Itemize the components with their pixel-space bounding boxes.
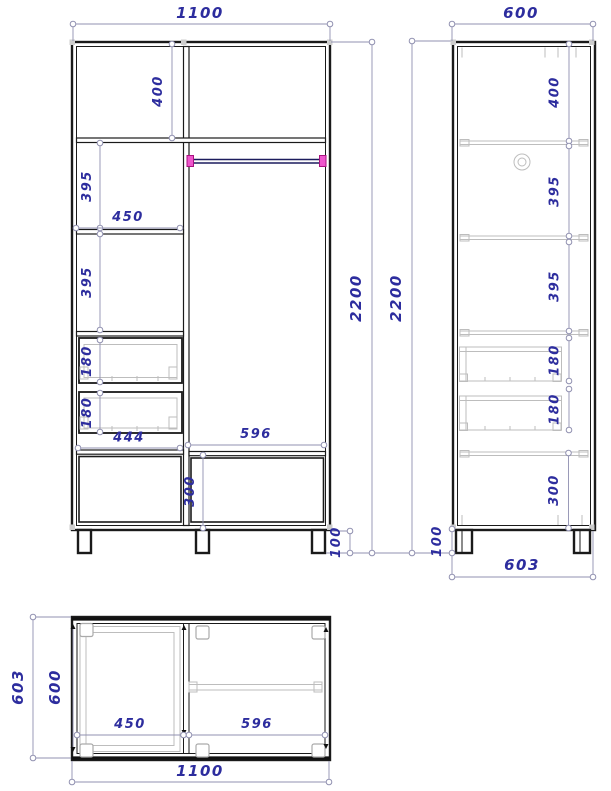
dim-front-top-section: 400 — [151, 75, 166, 108]
dim-endpoint — [449, 21, 455, 27]
dim-plan-right-width: 596 — [241, 717, 273, 732]
dim-endpoint — [200, 525, 206, 531]
dim-endpoint — [566, 335, 572, 341]
dim-endpoint — [449, 550, 455, 556]
dim-endpoint — [449, 574, 455, 580]
dim-endpoint — [566, 143, 572, 149]
front-legs — [78, 530, 325, 553]
dim-endpoint — [566, 328, 572, 334]
dim-front-drawer-width: 444 — [112, 431, 145, 446]
dim-endpoint — [97, 390, 103, 396]
plan-leg — [80, 744, 93, 757]
front-view: 1100 400 395 450 395 180 180 — [70, 4, 453, 558]
dim-side-shelf-a: 395 — [548, 175, 563, 207]
front-right-divider — [189, 452, 326, 456]
wardrobe-drawing: 1100 400 395 450 395 180 180 — [0, 0, 611, 791]
plan-leg — [312, 744, 325, 757]
front-leg-right — [312, 530, 325, 553]
dim-endpoint — [177, 445, 183, 451]
dim-endpoint — [449, 526, 455, 532]
dim-endpoint — [185, 442, 191, 448]
plan-leg — [80, 624, 93, 637]
dim-endpoint — [590, 21, 596, 27]
vertex-marker — [451, 40, 457, 46]
vertex-marker — [70, 40, 76, 46]
dim-front-total-height: 2200 — [347, 274, 365, 322]
dim-endpoint — [321, 442, 327, 448]
dim-endpoint — [74, 732, 80, 738]
dim-plan-depth-outer: 603 — [9, 669, 27, 705]
front-leg-left — [78, 530, 91, 553]
dim-endpoint — [590, 574, 596, 580]
dim-endpoint — [30, 614, 36, 620]
dim-endpoint — [70, 21, 76, 27]
side-leg-back — [574, 530, 590, 553]
technical-drawing-canvas: 1100 400 395 450 395 180 180 — [0, 0, 611, 791]
dim-side-drawer-b: 180 — [548, 393, 563, 425]
dim-side-leg-height: 100 — [430, 525, 445, 557]
side-view: 600 400 395 395 180 180 300 — [430, 4, 596, 580]
dim-endpoint — [322, 732, 328, 738]
plan-leg — [196, 626, 209, 639]
front-shelf-3 — [77, 450, 184, 454]
dim-endpoint — [566, 427, 572, 433]
dim-endpoint — [177, 225, 183, 231]
dim-front-leg-height: 100 — [329, 526, 344, 558]
dim-endpoint — [97, 429, 103, 435]
dim-endpoint — [97, 337, 103, 343]
side-carcass — [453, 42, 595, 530]
dim-side-total-height: 2200 — [387, 274, 405, 322]
dim-plan-left-width: 450 — [113, 717, 146, 732]
dim-endpoint — [69, 779, 75, 785]
side-leg-front — [456, 530, 472, 553]
dim-endpoint — [566, 525, 572, 531]
dim-endpoint — [409, 550, 415, 556]
dim-side-shelf-b: 395 — [548, 270, 563, 302]
side-legs — [456, 530, 590, 553]
dim-front-total-width: 1100 — [176, 4, 224, 22]
dim-plan-depth-inner: 600 — [46, 669, 64, 705]
dim-endpoint — [347, 528, 353, 534]
front-left-door — [79, 457, 181, 523]
dim-front-bottom-section: 300 — [183, 475, 198, 507]
dim-endpoint — [30, 755, 36, 761]
dim-endpoint — [97, 379, 103, 385]
dim-endpoint — [409, 38, 415, 44]
dim-endpoint — [169, 135, 175, 141]
dim-front-shelf-a: 395 — [80, 170, 95, 202]
vertex-marker — [589, 40, 595, 46]
dim-front-left-width: 450 — [111, 210, 144, 225]
dim-endpoint — [97, 140, 103, 146]
rod-cap-left — [187, 156, 194, 167]
front-middle-divider — [184, 47, 190, 526]
dim-endpoint — [369, 39, 375, 45]
dim-endpoint — [326, 779, 332, 785]
dim-endpoint — [75, 445, 81, 451]
rod-cap-right — [320, 156, 327, 167]
dim-side-top-section: 400 — [548, 76, 563, 109]
dim-endpoint — [97, 231, 103, 237]
dim-endpoint — [566, 41, 572, 47]
dim-side-drawer-a: 180 — [548, 344, 563, 376]
front-right-panel — [191, 458, 324, 522]
dim-endpoint — [347, 550, 353, 556]
dim-endpoint — [566, 386, 572, 392]
dim-endpoint — [97, 327, 103, 333]
dim-endpoint — [186, 732, 192, 738]
dim-endpoint — [200, 452, 206, 458]
dim-endpoint — [369, 550, 375, 556]
dim-endpoint — [181, 732, 187, 738]
vertex-marker — [181, 40, 187, 46]
dim-side-bottom-section: 300 — [547, 474, 562, 506]
dim-endpoint — [566, 450, 572, 456]
dim-side-depth-bottom: 603 — [504, 556, 540, 574]
front-shelf-2 — [77, 332, 184, 337]
dim-front-drawer-a: 180 — [80, 345, 95, 377]
plan-leg — [312, 626, 325, 639]
dim-endpoint — [566, 233, 572, 239]
front-top-shelf — [77, 138, 326, 143]
dim-front-shelf-b: 395 — [80, 266, 95, 298]
dim-endpoint — [73, 225, 79, 231]
side-cabinet-outline — [451, 40, 596, 531]
dim-endpoint — [566, 378, 572, 384]
front-shelf-1 — [77, 230, 184, 235]
dim-endpoint — [169, 41, 175, 47]
plan-view: 603 600 450 596 1100 — [9, 614, 332, 785]
dim-plan-total-width: 1100 — [176, 762, 224, 780]
dim-side-depth-top: 600 — [503, 4, 539, 22]
dim-front-right-width: 596 — [240, 427, 272, 442]
dim-endpoint — [327, 21, 333, 27]
vertex-marker — [70, 525, 76, 531]
dim-endpoint — [566, 239, 572, 245]
plan-leg — [196, 744, 209, 757]
front-leg-middle — [196, 530, 209, 553]
dim-front-drawer-b: 180 — [80, 397, 95, 429]
